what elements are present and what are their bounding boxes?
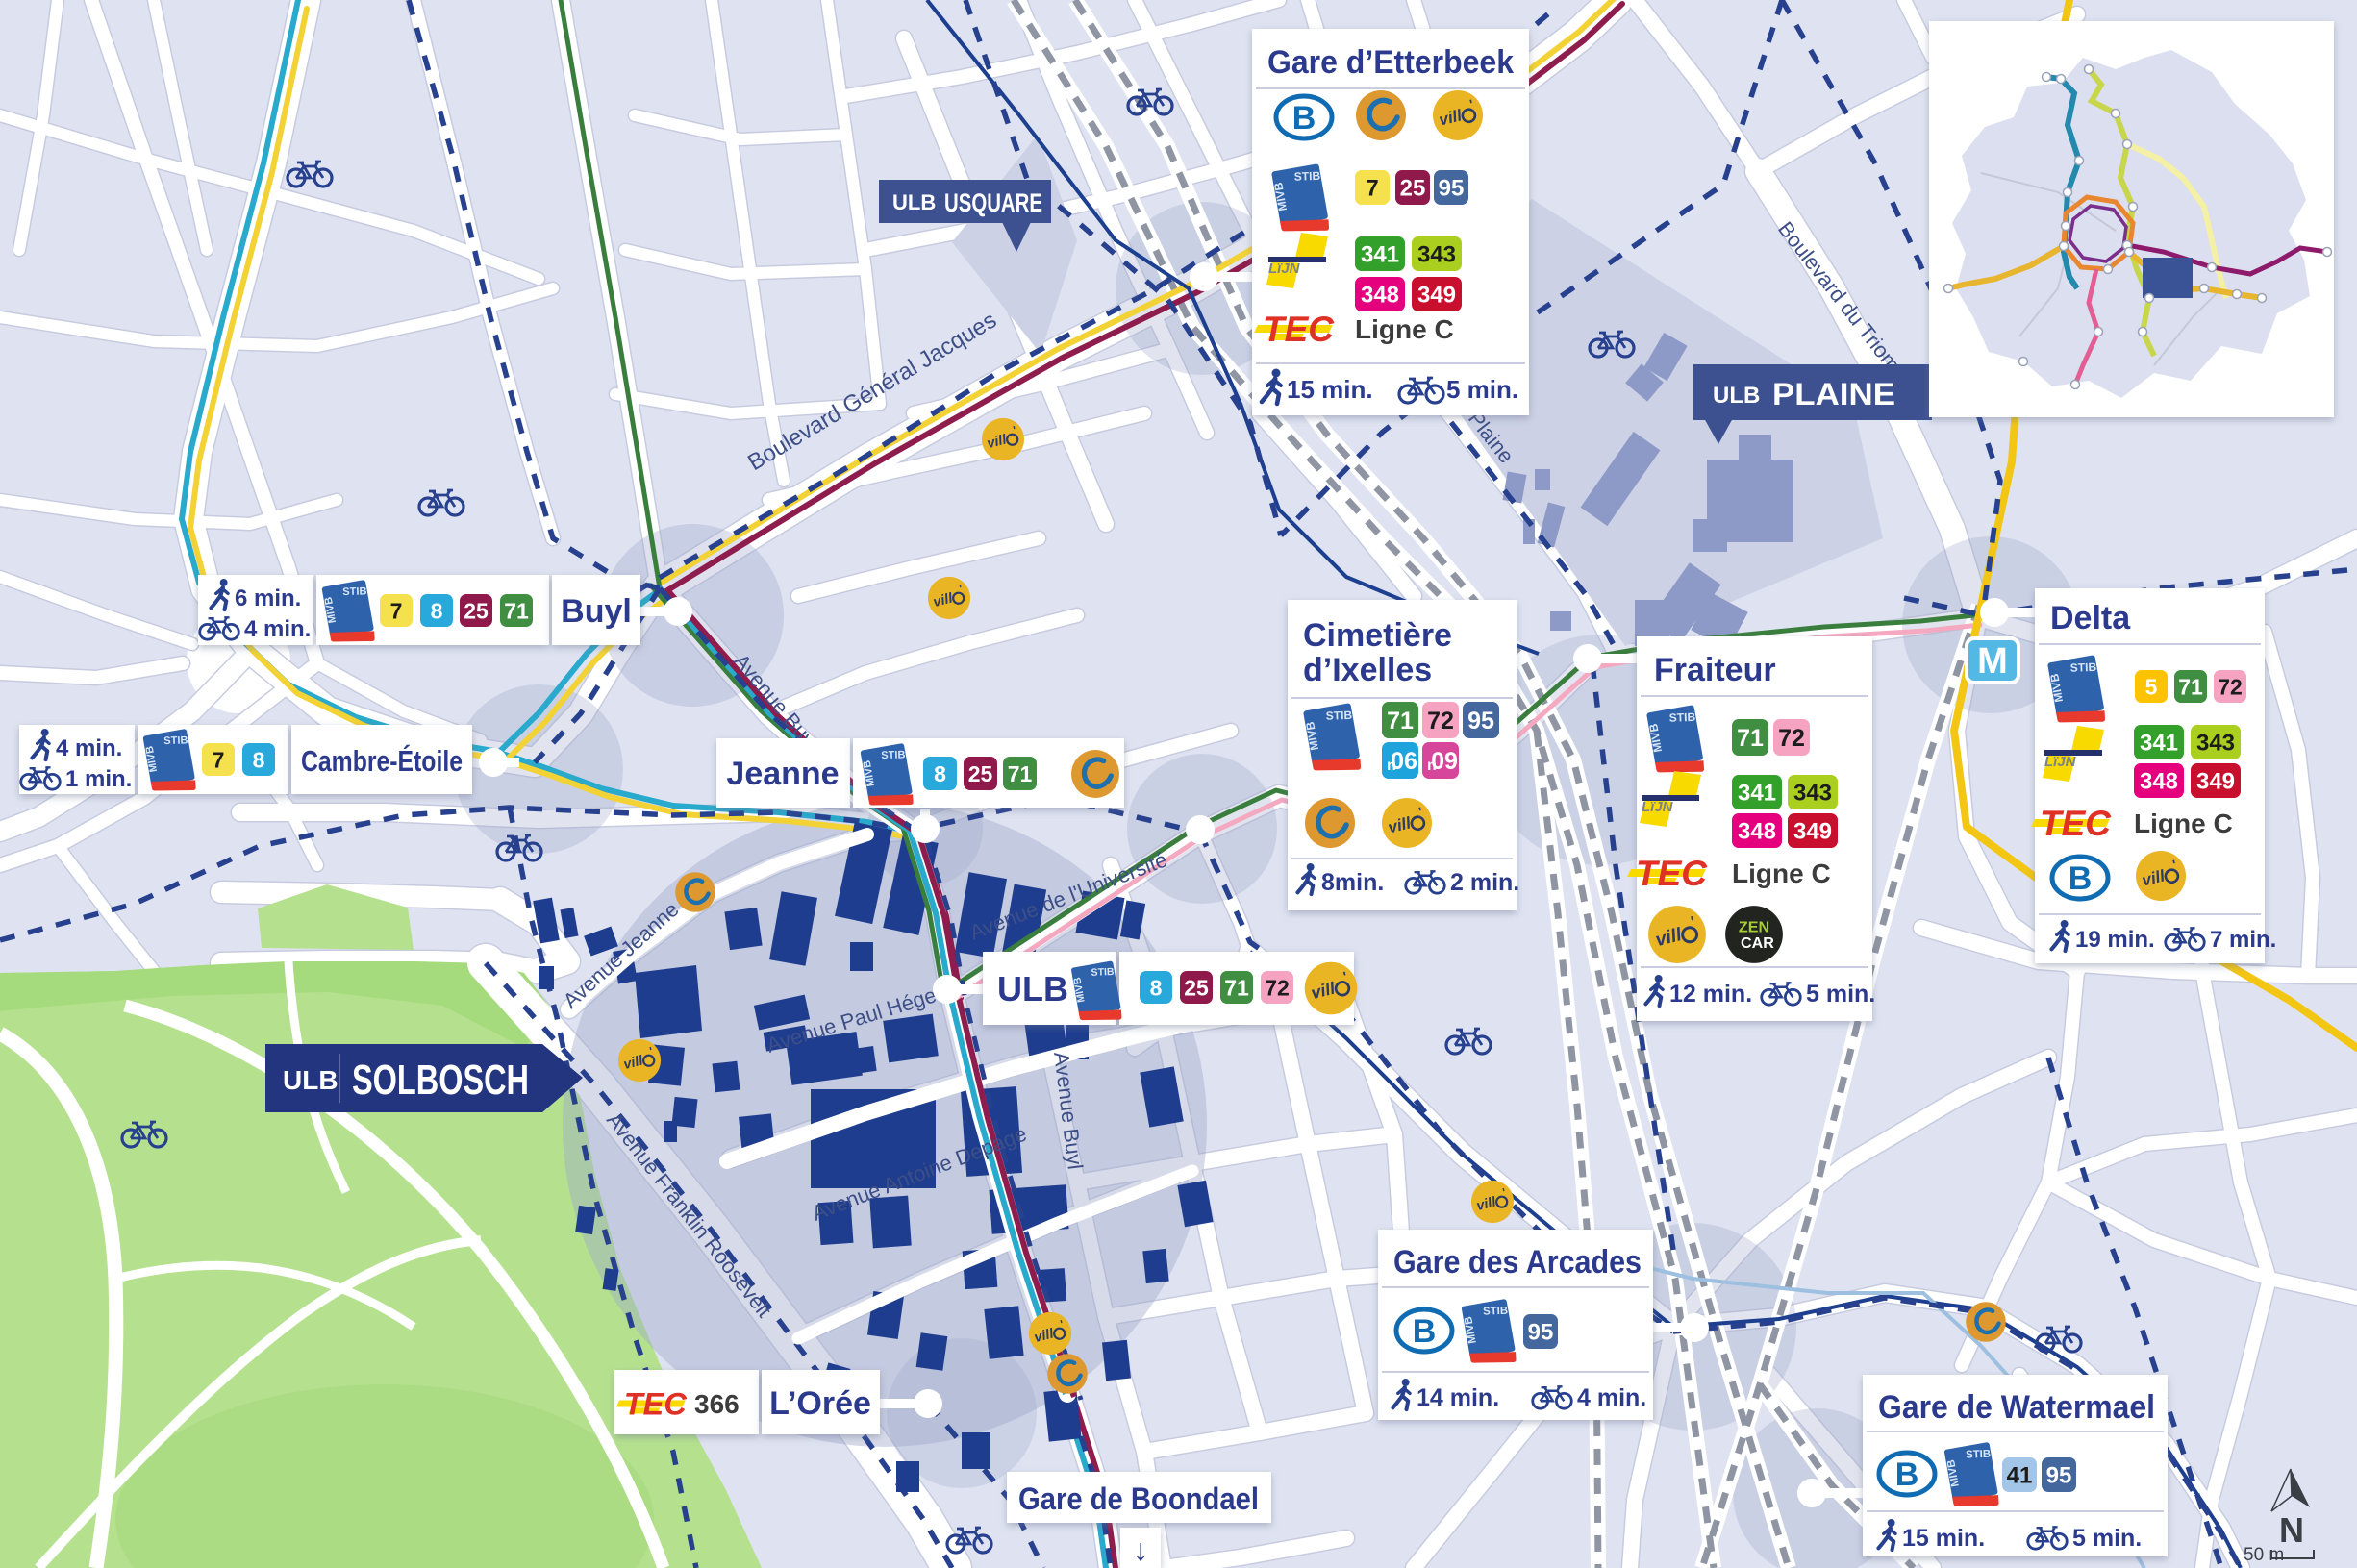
svg-text:USQUARE: USQUARE (944, 188, 1042, 217)
svg-text:ULB: ULB (892, 190, 936, 214)
svg-text:N: N (2279, 1510, 2304, 1550)
svg-text:349: 349 (2196, 769, 2235, 795)
svg-text:25: 25 (968, 761, 993, 786)
svg-text:72: 72 (2218, 674, 2243, 699)
svg-text:95: 95 (1439, 176, 1465, 202)
svg-text:71: 71 (1387, 708, 1414, 734)
svg-text:4 min.: 4 min. (244, 616, 311, 642)
svg-text:5 min.: 5 min. (2072, 1525, 2142, 1552)
svg-text:72: 72 (1427, 708, 1454, 734)
svg-text:8: 8 (253, 747, 265, 772)
svg-text:ULB: ULB (997, 969, 1068, 1008)
svg-text:5: 5 (2145, 674, 2158, 699)
svg-text:71: 71 (1008, 761, 1033, 786)
svg-text:348: 348 (2140, 769, 2178, 795)
svg-text:72: 72 (1778, 725, 1805, 752)
svg-text:25: 25 (1400, 176, 1426, 202)
svg-text:343: 343 (2196, 731, 2235, 757)
svg-text:L’Orée: L’Orée (769, 1385, 871, 1422)
svg-text:Delta: Delta (2050, 600, 2131, 636)
svg-text:71: 71 (1224, 975, 1249, 1000)
svg-text:06: 06 (1391, 748, 1417, 775)
svg-text:25: 25 (1184, 975, 1209, 1000)
svg-text:71: 71 (504, 598, 529, 623)
svg-text:M: M (1977, 641, 2008, 682)
svg-text:19 min.: 19 min. (2075, 927, 2155, 953)
svg-text:Buyl: Buyl (561, 593, 632, 630)
svg-text:Cimetière: Cimetière (1303, 617, 1452, 654)
svg-text:8: 8 (431, 598, 443, 623)
svg-text:14 min.: 14 min. (1417, 1384, 1499, 1411)
svg-text:Fraiteur: Fraiteur (1654, 652, 1776, 688)
svg-text:7: 7 (390, 598, 403, 623)
svg-text:366: 366 (694, 1389, 740, 1419)
svg-text:8: 8 (934, 761, 946, 786)
svg-text:5 min.: 5 min. (1446, 375, 1518, 404)
svg-text:Jeanne: Jeanne (726, 756, 839, 792)
svg-text:09: 09 (1431, 748, 1458, 775)
svg-text:d’Ixelles: d’Ixelles (1303, 652, 1432, 688)
svg-text:341: 341 (1361, 242, 1399, 268)
svg-text:ULB: ULB (1713, 383, 1760, 409)
svg-text:8min.: 8min. (1321, 869, 1384, 896)
svg-text:348: 348 (1738, 819, 1776, 845)
svg-text:Ligne C: Ligne C (2134, 809, 2233, 838)
svg-text:↓: ↓ (1133, 1532, 1148, 1567)
svg-text:6 min.: 6 min. (235, 585, 301, 611)
svg-text:4 min.: 4 min. (1577, 1384, 1646, 1411)
svg-text:5 min.: 5 min. (1806, 981, 1875, 1008)
svg-text:15 min.: 15 min. (1902, 1525, 1985, 1552)
svg-text:348: 348 (1361, 283, 1399, 309)
svg-text:Gare de Boondael: Gare de Boondael (1018, 1481, 1259, 1516)
svg-text:349: 349 (1417, 283, 1456, 309)
svg-text:Ligne C: Ligne C (1355, 314, 1454, 344)
svg-text:SOLBOSCH: SOLBOSCH (352, 1057, 529, 1104)
svg-text:25: 25 (464, 598, 489, 623)
svg-text:12 min.: 12 min. (1669, 981, 1752, 1008)
svg-text:7: 7 (213, 747, 225, 772)
svg-text:72: 72 (1265, 975, 1290, 1000)
svg-text:71: 71 (1737, 725, 1764, 752)
svg-text:95: 95 (2046, 1463, 2072, 1489)
svg-text:8: 8 (1150, 975, 1163, 1000)
svg-text:4 min.: 4 min. (56, 735, 122, 761)
svg-text:41: 41 (2007, 1463, 2033, 1489)
svg-text:2 min.: 2 min. (1450, 869, 1519, 896)
svg-text:ULB: ULB (283, 1065, 339, 1095)
svg-text:343: 343 (1793, 781, 1832, 807)
svg-text:7: 7 (1366, 176, 1378, 202)
svg-text:341: 341 (2140, 731, 2178, 757)
svg-text:Ligne C: Ligne C (1732, 859, 1831, 888)
svg-text:15 min.: 15 min. (1287, 375, 1373, 404)
svg-text:71: 71 (2178, 674, 2203, 699)
svg-text:95: 95 (1467, 708, 1494, 734)
svg-text:95: 95 (1528, 1320, 1554, 1346)
svg-text:7 min.: 7 min. (2210, 927, 2276, 953)
svg-text:Gare d’Etterbeek: Gare d’Etterbeek (1267, 44, 1514, 81)
svg-text:Gare de Watermael: Gare de Watermael (1878, 1389, 2155, 1426)
svg-text:50 m: 50 m (2244, 1545, 2284, 1565)
svg-text:Cambre-Étoile: Cambre-Étoile (301, 744, 463, 778)
svg-text:349: 349 (1793, 819, 1832, 845)
svg-text:343: 343 (1417, 242, 1456, 268)
svg-text:341: 341 (1738, 781, 1776, 807)
svg-text:Gare des Arcades: Gare des Arcades (1393, 1244, 1642, 1281)
svg-text:1 min.: 1 min. (65, 766, 132, 792)
svg-text:PLAINE: PLAINE (1772, 377, 1895, 411)
